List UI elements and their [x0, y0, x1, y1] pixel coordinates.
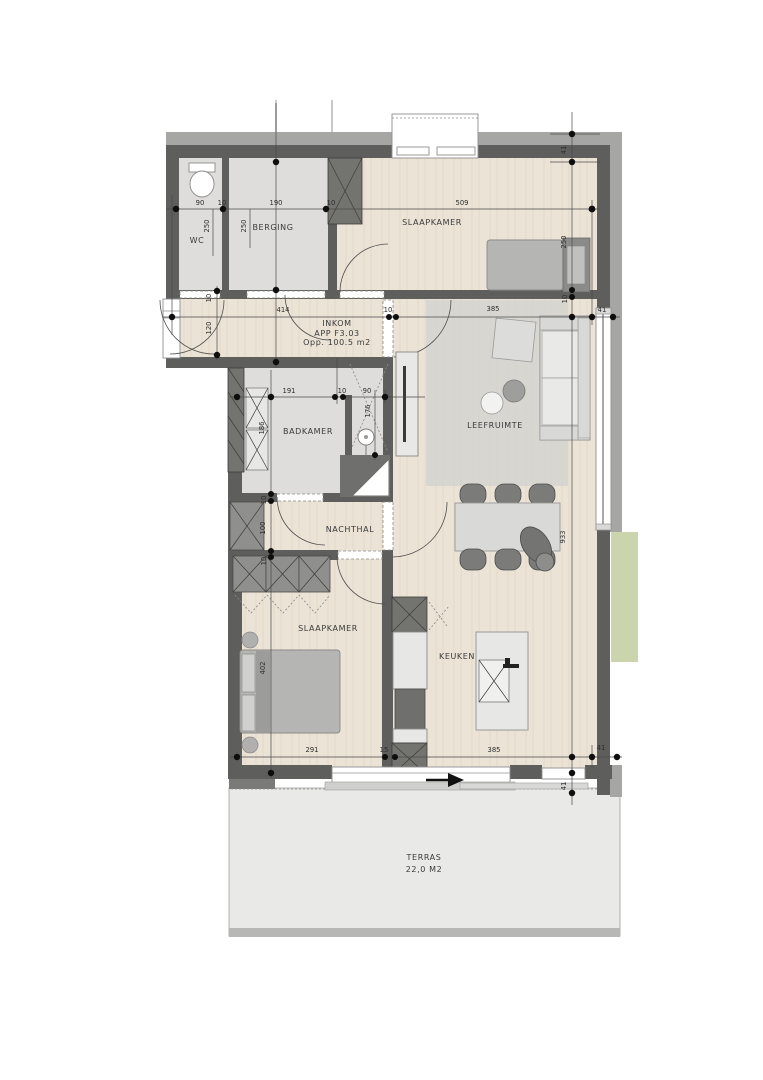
- dim-191-badkamer: 191: [283, 387, 296, 395]
- coffee-table-dark: [503, 380, 525, 402]
- wc-toilet: [189, 163, 215, 197]
- sofa: [540, 316, 590, 440]
- dim-176-douche: 176: [364, 405, 372, 418]
- dim-41-leefruimte: 41: [598, 306, 607, 314]
- nightstand-bottom: [242, 737, 258, 753]
- terras-label: TERRAS: [406, 853, 442, 862]
- shaft-badkamer-wall: [228, 368, 244, 472]
- inkom-label: INKOM: [322, 319, 351, 328]
- green-area: [611, 532, 638, 662]
- dim-250-wc: 250: [203, 220, 211, 233]
- dining-chairs-top: [460, 484, 555, 505]
- badkamer-label: BADKAMER: [283, 427, 333, 436]
- shaft-triangle-block: [340, 455, 390, 497]
- entry-door-opening: [163, 299, 180, 358]
- slaapkamer1-label: SLAAPKAMER: [402, 218, 462, 227]
- dim-10-entry: 10: [205, 294, 213, 303]
- dim-10-nachthal-top: 10: [260, 496, 268, 505]
- dim-120-entry: 120: [205, 322, 213, 335]
- terras-area-label: 22,0 M2: [406, 865, 443, 874]
- window-right-leefruimte: [596, 308, 611, 530]
- dim-10-badkamer: 10: [338, 387, 347, 395]
- window-top-slaapkamer1: [392, 114, 478, 158]
- apartment-code-label: APP F3.03: [314, 329, 359, 338]
- column-berging: [328, 158, 362, 224]
- dim-10-nachthal-bottom: 10: [260, 557, 268, 566]
- berging-label: BERGING: [252, 223, 293, 232]
- dim-10: 10: [327, 199, 336, 207]
- dim-402-slaapkamer2: 402: [259, 662, 267, 675]
- wc-label: WC: [190, 236, 205, 245]
- nightstand-top: [242, 632, 258, 648]
- dim-41-top: 41: [560, 146, 568, 155]
- dim-90-wc: 90: [196, 199, 205, 207]
- terrace: TERRAS 22,0 M2: [229, 779, 620, 937]
- dim-190-berging: 190: [270, 199, 283, 207]
- kitchen-island: [476, 632, 528, 730]
- dim-250-slaapkamer1: 250: [560, 236, 568, 249]
- dim-15: 15: [380, 746, 389, 754]
- bed-slaapkamer1: [487, 238, 590, 292]
- dim-41-terras: 41: [560, 782, 568, 791]
- dim-250-berging: 250: [240, 220, 248, 233]
- floorplan-page: TERRAS 22,0 M2: [0, 0, 763, 1080]
- dim-385-keuken: 385: [488, 746, 501, 754]
- dim-10: 10: [218, 199, 227, 207]
- apartment-area-label: Opp. 100.5 m2: [303, 338, 371, 347]
- dim-100-nachthal: 100: [259, 522, 267, 535]
- dim-41-bottom: 41: [597, 744, 606, 752]
- keuken-label: KEUKEN: [439, 652, 475, 661]
- coffee-table-light: [481, 392, 503, 414]
- dim-509-slaapkamer1: 509: [456, 199, 469, 207]
- dim-933-leefruimte: 933: [559, 531, 567, 544]
- dim-385-leefruimte: 385: [487, 305, 500, 313]
- nachthal-label: NACHTHAL: [326, 525, 375, 534]
- dim-10-right: 10: [561, 295, 569, 304]
- floorplan-drawing: TERRAS 22,0 M2: [0, 0, 763, 1080]
- dim-186-badkamer: 186: [258, 422, 266, 435]
- leefruimte-label: LEEFRUIMTE: [467, 421, 523, 430]
- side-table-square: [492, 318, 536, 362]
- tv-cabinet: [396, 352, 418, 456]
- dim-10-inkom: 10: [384, 306, 393, 314]
- dim-90-douche: 90: [363, 387, 372, 395]
- dining-set: [455, 484, 560, 571]
- dim-291-slaapkamer2: 291: [306, 746, 319, 754]
- slaapkamer2-label: SLAAPKAMER: [298, 624, 358, 633]
- dim-414-inkom: 414: [277, 306, 290, 314]
